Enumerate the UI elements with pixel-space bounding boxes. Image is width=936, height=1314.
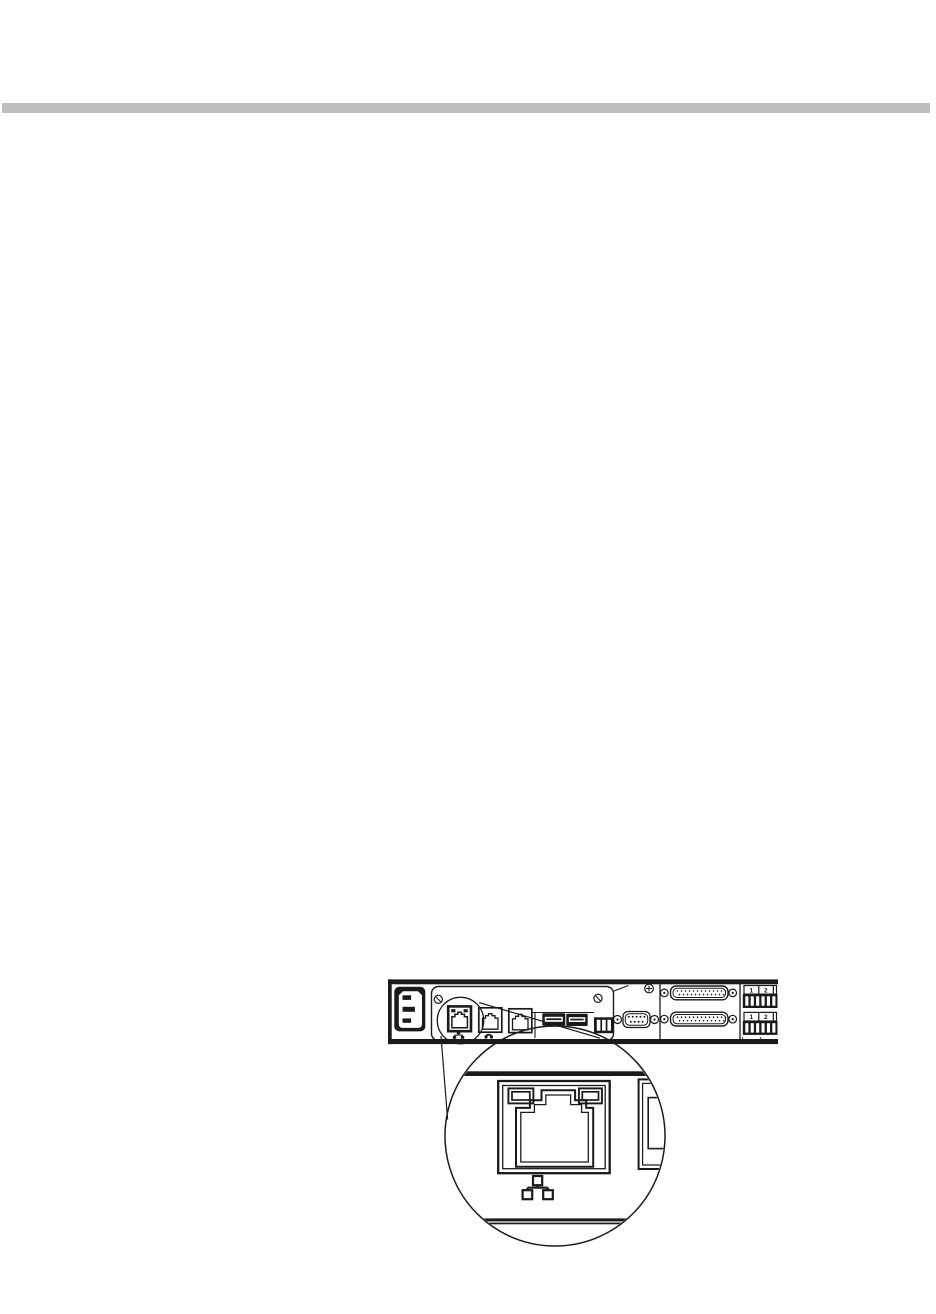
- power-pin: [403, 995, 412, 1000]
- plate-screw-left: [434, 995, 442, 1003]
- terminal-block-top: 1 2: [743, 986, 778, 1009]
- terminal-label: 2: [764, 1014, 768, 1021]
- rear-panel-figure: 1 2 1 2 + - +: [0, 0, 936, 1314]
- power-inlet: [394, 987, 425, 1032]
- ethernet-port-magnified: [498, 1081, 610, 1173]
- parallel-db25-bottom: [661, 1012, 737, 1026]
- power-pin: [403, 1007, 415, 1012]
- parallel-db25-top: [661, 986, 737, 1000]
- terminal-label: 2: [764, 987, 768, 994]
- flat-connector-2: [566, 1014, 587, 1026]
- phone-icon: [484, 1035, 493, 1039]
- ethernet-port: [448, 1006, 471, 1031]
- panel-bottom-edge-magnified: [440, 1218, 672, 1221]
- panel-bottom-edge-magnified: [440, 1223, 672, 1225]
- port-led: [451, 1009, 455, 1012]
- terminal-label: 1: [749, 987, 753, 994]
- bay-cutout-edge: [614, 986, 629, 992]
- panel-top-edge-magnified: [440, 1071, 672, 1076]
- terminal-block-bottom: 1 2 + - +: [740, 1012, 778, 1043]
- chassis-screw: [645, 984, 654, 993]
- network-icon-magnified: [523, 1176, 553, 1199]
- power-terminal-3pin: [594, 1017, 613, 1033]
- manual-page: { "page": { "background_color": "#ffffff…: [0, 0, 936, 1314]
- port-led: [464, 1009, 468, 1012]
- callout-line-left: [441, 1036, 448, 1120]
- plate-screw-right: [594, 994, 602, 1002]
- power-pin: [403, 1018, 412, 1022]
- adjacent-port-partial: [639, 1079, 705, 1169]
- flat-connector-1: [542, 1013, 565, 1025]
- terminal-label: 1: [749, 1014, 753, 1021]
- serial-db9-connector: [614, 1012, 659, 1028]
